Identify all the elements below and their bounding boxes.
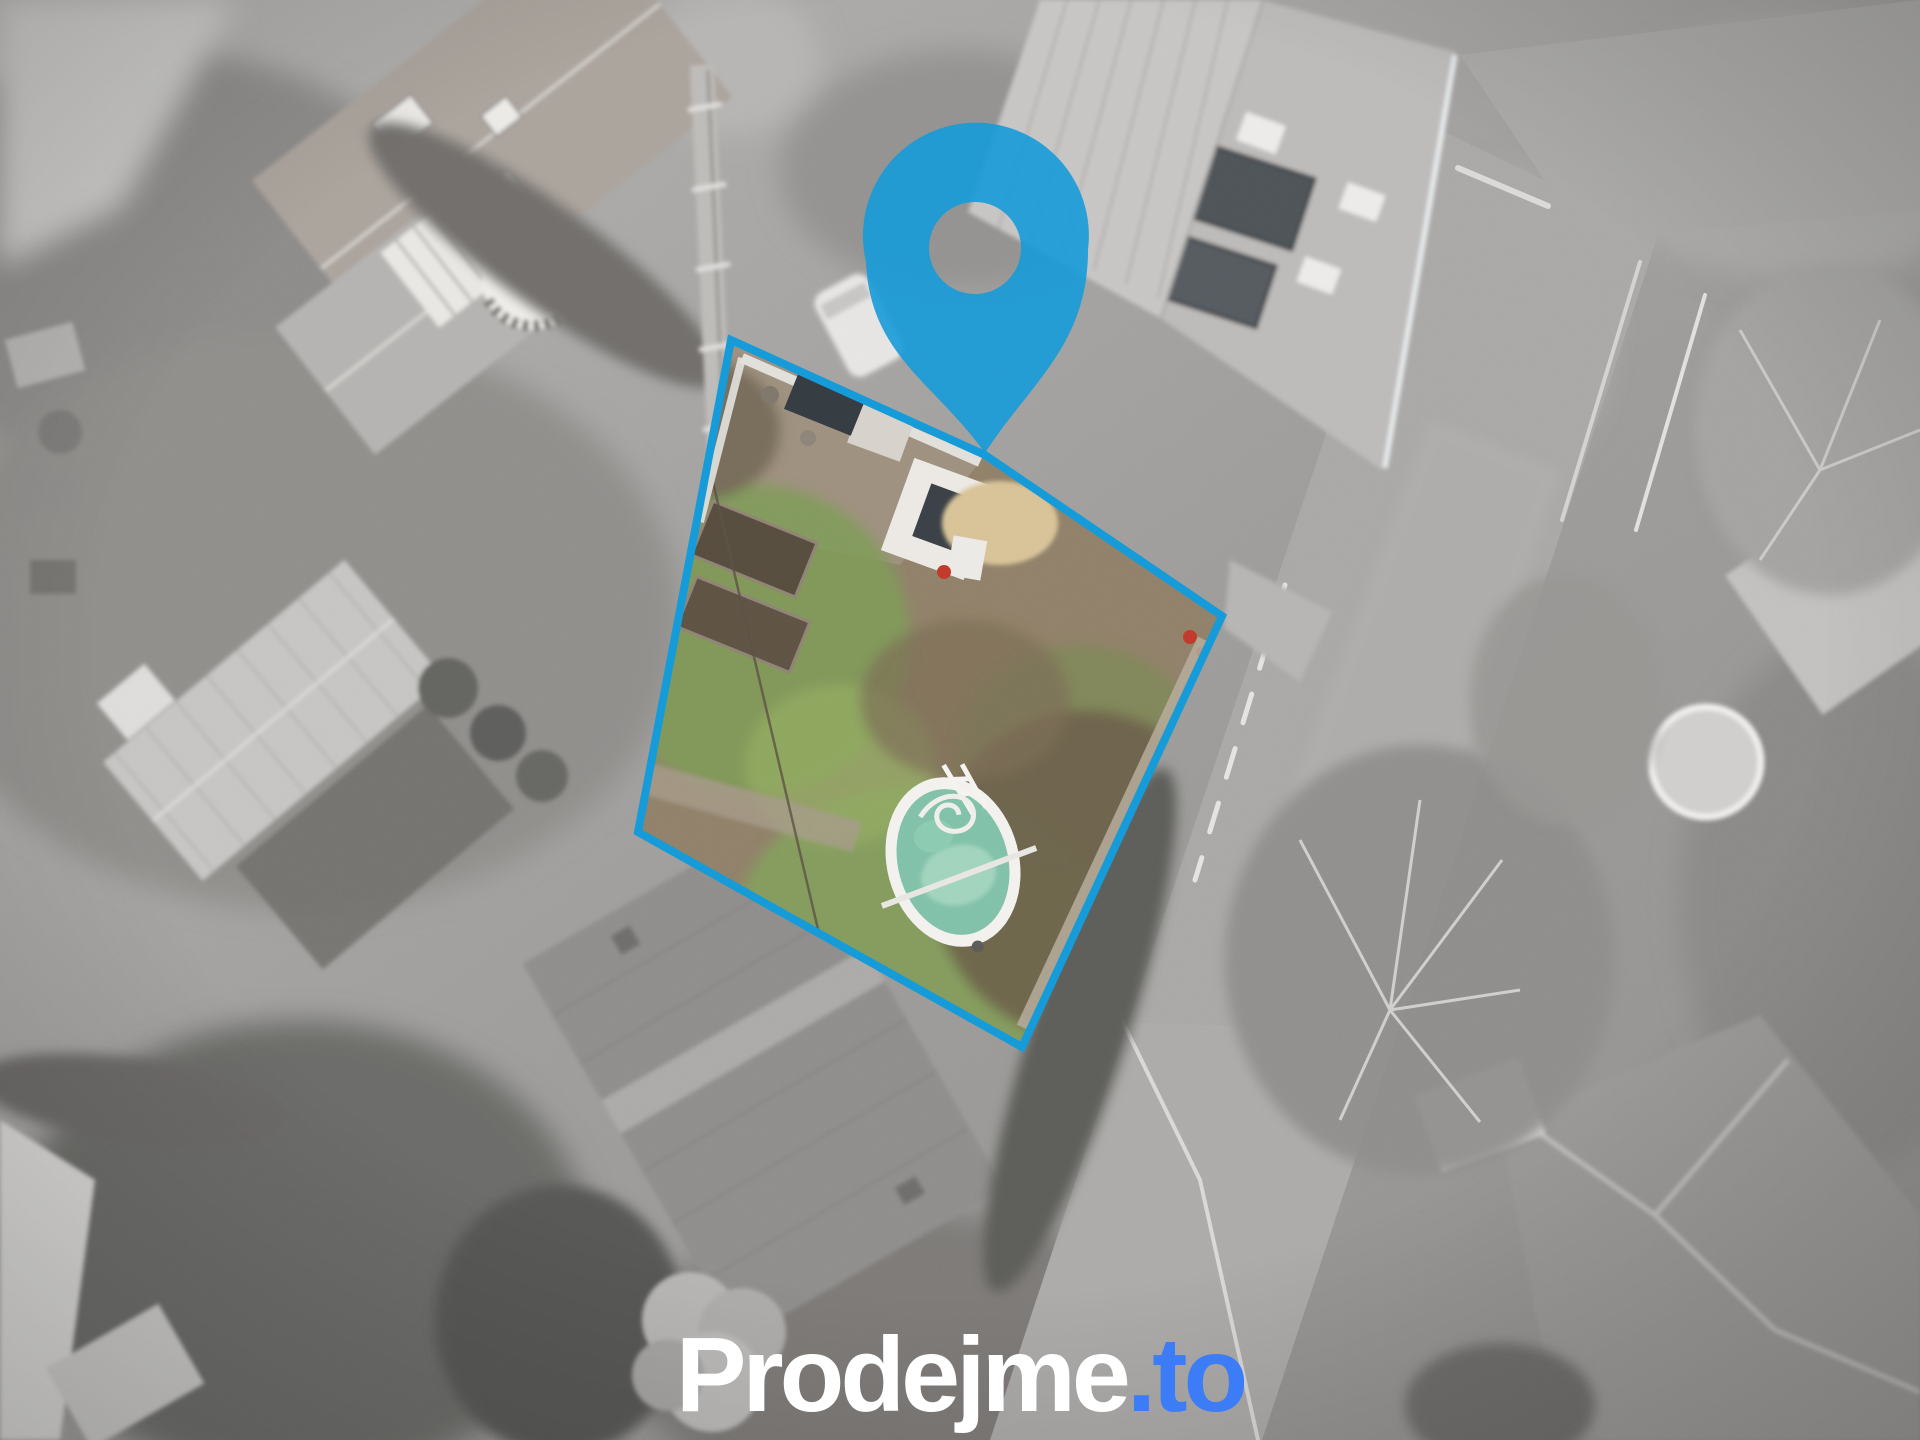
brand-logo: Prodejme.to — [0, 1322, 1920, 1428]
vignette — [0, 0, 1920, 1440]
aerial-photo: Prodejme.to — [0, 0, 1920, 1440]
logo-text-main: Prodejme — [676, 1316, 1127, 1434]
logo-text-suffix: .to — [1127, 1316, 1245, 1434]
aerial-scene — [0, 0, 1920, 1440]
